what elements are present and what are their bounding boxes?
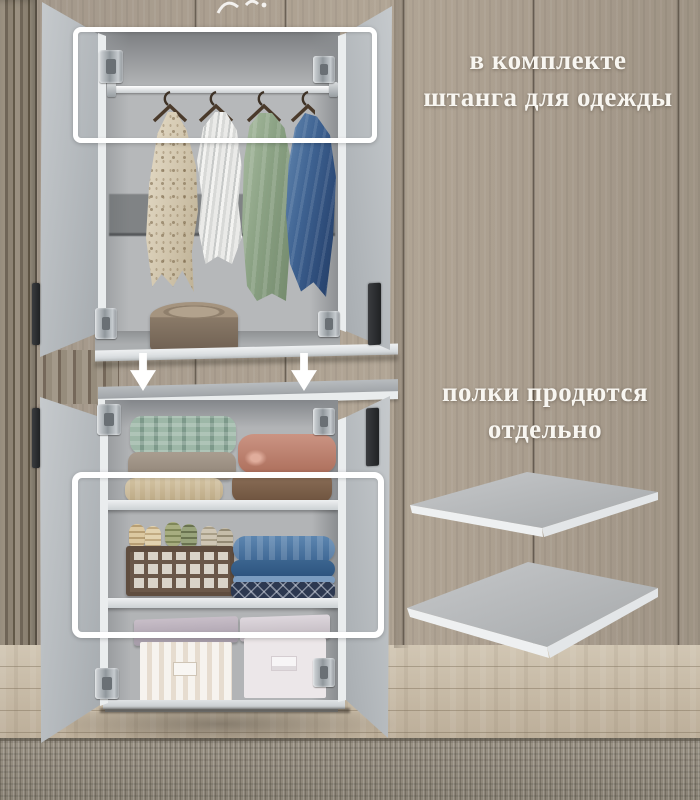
door-handle — [32, 408, 40, 468]
folded-teal-sweater — [130, 416, 236, 454]
shelves-highlight-box — [72, 472, 384, 638]
rod-note: в комплекте штанга для одежды — [398, 42, 698, 116]
hinge — [95, 668, 119, 699]
lower-cabinet-bottom-shadow — [100, 708, 350, 713]
hinge — [97, 404, 121, 435]
hinge — [313, 658, 335, 687]
door-handle — [368, 283, 381, 346]
hinge — [313, 408, 335, 435]
shelves-note: полки продются отдельно — [400, 374, 690, 448]
shelves-note-line1: полки продются — [400, 374, 690, 411]
wardrobe-product-photo: в комплекте штанга для одежды полки прод… — [0, 0, 700, 800]
hinge — [318, 311, 340, 337]
hinge — [95, 308, 117, 339]
round-storage-box — [150, 302, 238, 352]
watermark-partial — [200, 0, 280, 16]
carpet-rug — [0, 738, 700, 800]
rod-note-line1: в комплекте — [398, 42, 698, 79]
rod-note-line2: штанга для одежды — [398, 79, 698, 116]
storage-box-label — [271, 656, 297, 671]
folded-terracotta-blanket — [238, 434, 336, 474]
door-handle — [32, 283, 40, 345]
door-handle — [366, 408, 379, 467]
rod-highlight-box — [73, 27, 377, 143]
loose-shelf-panels — [395, 455, 700, 670]
loose-shelf-bottom — [407, 562, 658, 658]
storage-box-label — [173, 662, 197, 676]
shelves-note-line2: отдельно — [400, 411, 690, 448]
loose-shelf-top — [410, 472, 658, 537]
